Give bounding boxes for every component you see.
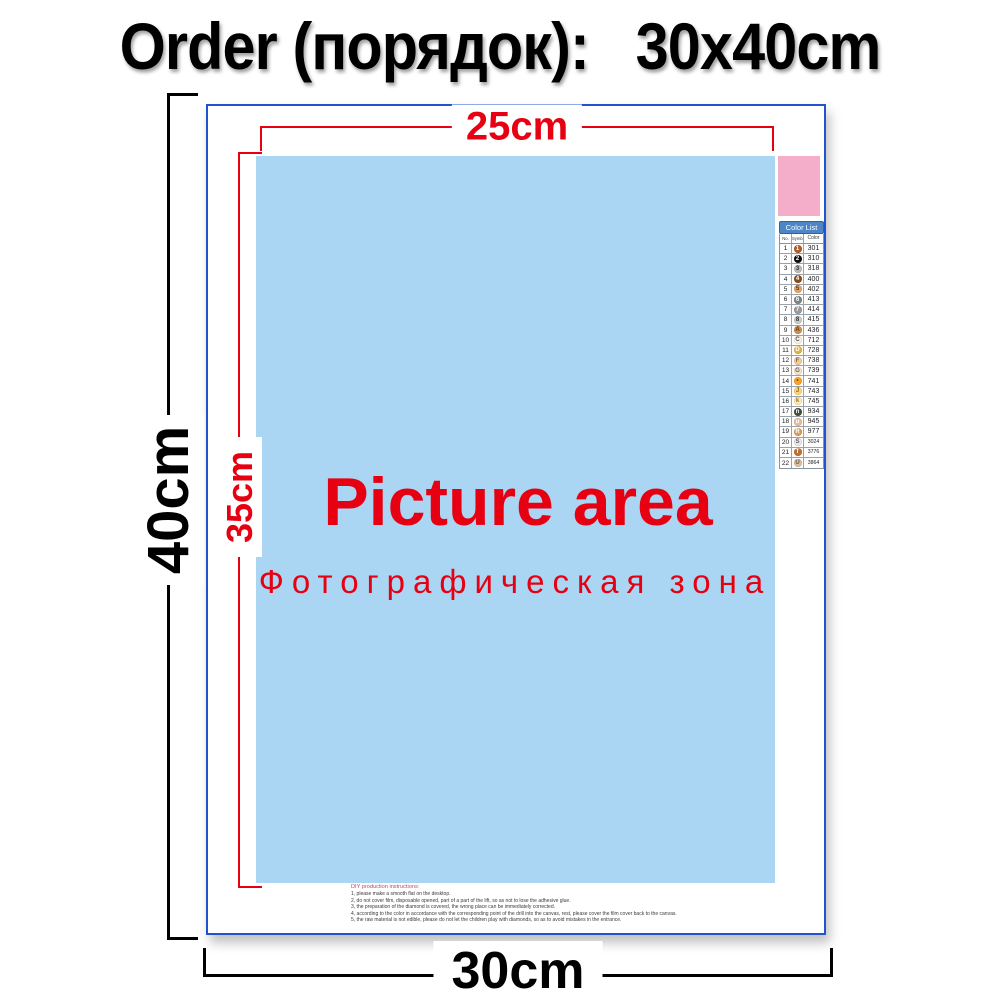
color-list-row: 66413 — [780, 295, 823, 305]
color-no: 20 — [780, 438, 792, 447]
color-symbol: S — [792, 438, 804, 447]
color-list-row: 10C712 — [780, 336, 823, 346]
color-symbol: C — [792, 336, 804, 345]
symbol-badge: 6 — [794, 296, 802, 304]
symbol-badge: 2 — [794, 255, 802, 263]
color-code: 728 — [804, 346, 823, 355]
symbol-badge: C — [794, 336, 802, 344]
color-code: 310 — [804, 254, 823, 263]
symbol-badge: 7 — [794, 306, 802, 314]
color-symbol: k — [792, 397, 804, 406]
color-list-row: 18u945 — [780, 417, 823, 427]
dimension-label-35cm: 35cm — [218, 437, 262, 557]
symbol-badge: J — [794, 387, 802, 395]
color-symbol: 2 — [792, 254, 804, 263]
dimension-label-30cm: 30cm — [434, 941, 603, 1000]
color-no: 16 — [780, 397, 792, 406]
color-no: 18 — [780, 417, 792, 426]
color-no: 2 — [780, 254, 792, 263]
instruction-line: 5, the raw material is not edible, pleas… — [351, 917, 791, 924]
color-list-column-header: Color — [804, 234, 823, 243]
color-symbol: R — [792, 427, 804, 436]
symbol-badge: S — [794, 438, 802, 446]
color-list-column-header: Symbol — [792, 234, 804, 243]
picture-area-subheading: Фотографическая зона — [259, 563, 771, 601]
color-symbol: 1 — [792, 244, 804, 253]
color-no: 11 — [780, 346, 792, 355]
color-list-column-header: No. — [780, 234, 792, 243]
color-code: 745 — [804, 397, 823, 406]
color-code: 301 — [804, 244, 823, 253]
color-no: 5 — [780, 285, 792, 294]
color-symbol: 6 — [792, 295, 804, 304]
color-symbol: J — [792, 387, 804, 396]
color-symbol: T — [792, 448, 804, 457]
symbol-badge: U — [794, 459, 802, 467]
color-list-row: 20S3024 — [780, 438, 823, 448]
symbol-badge: 3 — [794, 265, 802, 273]
color-list: Color List No.SymbolColor 11301223103331… — [779, 221, 824, 469]
color-code: 934 — [804, 407, 823, 416]
symbol-badge: • — [794, 377, 802, 385]
symbol-badge: 8 — [794, 316, 802, 324]
symbol-badge: F — [794, 357, 802, 365]
color-list-row: 13G739 — [780, 366, 823, 376]
color-code: 318 — [804, 264, 823, 273]
instructions-heading: DIY production instructions: — [351, 884, 791, 891]
color-list-row: 44400 — [780, 275, 823, 285]
color-list-row: 22U3864 — [780, 458, 823, 468]
color-list-row: 21T3776 — [780, 448, 823, 458]
color-code: 738 — [804, 356, 823, 365]
color-list-row: 11301 — [780, 244, 823, 254]
color-symbol: 7 — [792, 305, 804, 314]
color-no: 13 — [780, 366, 792, 375]
color-symbol: 5 — [792, 285, 804, 294]
symbol-badge: R — [794, 428, 802, 436]
color-no: 6 — [780, 295, 792, 304]
size-diagram: Order (порядок): 30x40cm Picture area Фо… — [0, 0, 1000, 1000]
diy-instructions: DIY production instructions: 1, please m… — [351, 884, 791, 924]
color-list-row: 33318 — [780, 264, 823, 274]
color-list-rows: 1130122310333184440055402664137741488415… — [779, 244, 824, 469]
color-no: 15 — [780, 387, 792, 396]
color-no: 12 — [780, 356, 792, 365]
color-symbol: • — [792, 376, 804, 385]
color-code: 945 — [804, 417, 823, 426]
color-list-row: 9A436 — [780, 326, 823, 336]
pink-swatch — [778, 156, 820, 216]
color-no: 7 — [780, 305, 792, 314]
color-code: 743 — [804, 387, 823, 396]
color-list-row: 22310 — [780, 254, 823, 264]
picture-area-heading: Picture area — [323, 463, 712, 541]
symbol-badge: n — [794, 408, 802, 416]
symbol-badge: D — [794, 346, 802, 354]
color-no: 17 — [780, 407, 792, 416]
color-list-columns: No.SymbolColor — [779, 234, 824, 244]
color-code: 739 — [804, 366, 823, 375]
color-no: 22 — [780, 458, 792, 468]
color-symbol: u — [792, 417, 804, 426]
page-title: Order (порядок): 30x40cm — [50, 8, 950, 84]
color-list-row: 12F738 — [780, 356, 823, 366]
color-list-row: 17n934 — [780, 407, 823, 417]
symbol-badge: 4 — [794, 275, 802, 283]
color-no: 1 — [780, 244, 792, 253]
color-symbol: 8 — [792, 315, 804, 324]
color-code: 400 — [804, 275, 823, 284]
symbol-badge: 5 — [794, 285, 802, 293]
color-symbol: D — [792, 346, 804, 355]
color-code: 415 — [804, 315, 823, 324]
color-symbol: F — [792, 356, 804, 365]
symbol-badge: A — [794, 326, 802, 334]
color-list-row: 19R977 — [780, 427, 823, 437]
symbol-badge: T — [794, 448, 802, 456]
color-no: 9 — [780, 326, 792, 335]
color-symbol: n — [792, 407, 804, 416]
color-code: 741 — [804, 376, 823, 385]
instruction-line: 2, do not cover film, disposable opened,… — [351, 898, 791, 905]
color-code: 413 — [804, 295, 823, 304]
color-no: 14 — [780, 376, 792, 385]
color-list-row: 14•741 — [780, 376, 823, 386]
instructions-lines: 1, please make a smooth flat on the desk… — [351, 891, 791, 924]
color-code: 414 — [804, 305, 823, 314]
color-no: 10 — [780, 336, 792, 345]
color-symbol: 3 — [792, 264, 804, 273]
color-no: 8 — [780, 315, 792, 324]
color-symbol: U — [792, 458, 804, 468]
color-code: 977 — [804, 427, 823, 436]
color-list-row: 77414 — [780, 305, 823, 315]
symbol-badge: 1 — [794, 245, 802, 253]
color-list-title: Color List — [779, 221, 824, 234]
color-list-row: 16k745 — [780, 397, 823, 407]
color-symbol: 4 — [792, 275, 804, 284]
color-list-row: 11D728 — [780, 346, 823, 356]
color-code: 3024 — [804, 438, 823, 447]
color-no: 4 — [780, 275, 792, 284]
dimension-label-25cm: 25cm — [452, 105, 582, 150]
color-list-row: 88415 — [780, 315, 823, 325]
dimension-label-40cm: 40cm — [134, 415, 204, 585]
instruction-line: 3, the preparation of the diamond is cov… — [351, 904, 791, 911]
color-no: 21 — [780, 448, 792, 457]
instruction-line: 1, please make a smooth flat on the desk… — [351, 891, 791, 898]
color-list-row: 55402 — [780, 285, 823, 295]
color-symbol: G — [792, 366, 804, 375]
color-no: 3 — [780, 264, 792, 273]
color-code: 3776 — [804, 448, 823, 457]
instruction-line: 4, according to the color in accordance … — [351, 911, 791, 918]
color-code: 3864 — [804, 458, 823, 468]
symbol-badge: k — [794, 397, 802, 405]
color-code: 402 — [804, 285, 823, 294]
color-symbol: A — [792, 326, 804, 335]
symbol-badge: G — [794, 367, 802, 375]
color-no: 19 — [780, 427, 792, 436]
color-list-row: 15J743 — [780, 387, 823, 397]
color-code: 436 — [804, 326, 823, 335]
color-code: 712 — [804, 336, 823, 345]
symbol-badge: u — [794, 418, 802, 426]
